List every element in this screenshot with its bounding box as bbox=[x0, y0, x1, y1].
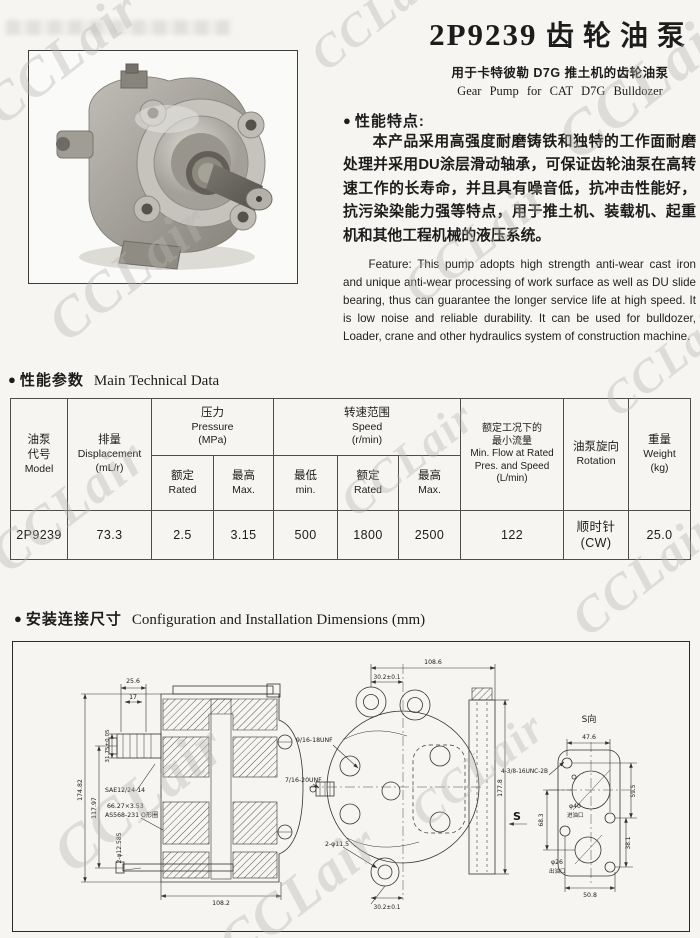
section-view bbox=[109, 684, 303, 882]
dim-label: 30.2±0.1 bbox=[374, 905, 401, 911]
features-paragraph-cn: 本产品采用高强度耐磨铸铁和独特的工作面耐磨处理并采用DU涂层滑动轴承，可保证齿轮… bbox=[343, 131, 696, 248]
cell-pressure-rated: 2.5 bbox=[152, 511, 214, 560]
cell-weight: 25.0 bbox=[629, 511, 691, 560]
s-view-labels: S向 47.6 59.5 68.3 38.1 50.8 φ40 进油口 φ26 … bbox=[539, 713, 637, 899]
dim-label: 38.1 bbox=[626, 836, 632, 849]
header-line: 最小流量 bbox=[463, 436, 561, 449]
product-name-cn: 齿轮油泵 bbox=[546, 20, 694, 51]
port-label: 7/16-20UNF bbox=[285, 777, 322, 784]
dim-label: 177.8 bbox=[497, 779, 504, 797]
page-title: 2P9239 齿轮油泵 bbox=[360, 14, 694, 54]
header-line: 最高 bbox=[216, 469, 271, 484]
features-heading-text: 性能特点: bbox=[355, 113, 425, 130]
catalog-page: CCLair CCLair CCLair CCLair CCLair CCLai… bbox=[0, 0, 700, 938]
header-line: (MPa) bbox=[154, 434, 271, 448]
header-line: Weight bbox=[631, 448, 688, 462]
cell-model: 2P9239 bbox=[11, 511, 68, 560]
header-line: Rotation bbox=[566, 455, 626, 469]
header-line: Model bbox=[13, 463, 65, 477]
dim-label: 108.6 bbox=[424, 659, 442, 666]
dim-label: 17 bbox=[129, 694, 137, 701]
header-line: Rated bbox=[154, 484, 211, 498]
spec-table: 油泵 代号 Model 排量 Displacement (mL/r) 压力 Pr… bbox=[10, 398, 691, 560]
header-line: 额定工况下的 bbox=[463, 423, 561, 436]
oring-size-label: 66.27×3.53 bbox=[107, 803, 144, 810]
spline-label: SAE12/24-14 bbox=[105, 787, 145, 794]
col-header-speed-rated: 额定 Rated bbox=[338, 456, 399, 511]
col-group-pressure: 压力 Pressure (MPa) bbox=[152, 399, 274, 456]
header-line: 转速范围 bbox=[276, 406, 458, 421]
tech-heading-cn: 性能参数 bbox=[20, 372, 84, 389]
showthrough-artifact bbox=[6, 20, 231, 35]
cell-speed-max: 2500 bbox=[399, 511, 461, 560]
header-line: Max. bbox=[216, 484, 271, 498]
dim-label: 31.75±0.05 bbox=[105, 729, 111, 763]
col-group-speed: 转速范围 Speed (r/min) bbox=[274, 399, 461, 456]
bullet-icon: ● bbox=[8, 372, 16, 387]
header-line: 压力 bbox=[154, 406, 271, 421]
dim-label: 25.6 bbox=[126, 678, 140, 685]
front-view-dimensions bbox=[313, 664, 564, 904]
header-line: 油泵 bbox=[13, 433, 65, 448]
features-heading: ●性能特点: bbox=[343, 110, 425, 131]
dim-label: 68.3 bbox=[539, 813, 545, 826]
dim-label: 117.97 bbox=[91, 797, 98, 819]
dowel-label: 2-φ12.585 bbox=[116, 832, 123, 863]
col-header-min-flow: 额定工况下的 最小流量 Min. Flow at Rated Pres. and… bbox=[461, 399, 564, 511]
front-view bbox=[309, 664, 495, 900]
header-line: (mL/r) bbox=[70, 462, 149, 476]
header-line: 最低 bbox=[276, 469, 335, 484]
model-number: 2P9239 bbox=[429, 17, 537, 52]
subtitle-en: Gear Pump for CAT D7G Bulldozer bbox=[426, 84, 694, 99]
bullet-icon: ● bbox=[343, 113, 351, 128]
front-view-labels: 108.6 30.2±0.1 9/16-18UNF 7/16-20UNF 2-φ… bbox=[285, 659, 548, 911]
cell-min-flow: 122 bbox=[461, 511, 564, 560]
dim-label: 30.2±0.1 bbox=[374, 675, 401, 681]
col-header-speed-max: 最高 Max. bbox=[399, 456, 461, 511]
outlet-label: 出油口 bbox=[549, 867, 566, 875]
rotation-cn: 顺时针 bbox=[566, 519, 626, 535]
header-line: 最高 bbox=[401, 469, 458, 484]
dim-label: 59.5 bbox=[631, 784, 637, 797]
inlet-label: 进油口 bbox=[567, 811, 584, 819]
rotation-en: (CW) bbox=[566, 535, 626, 551]
header-line: 重量 bbox=[631, 433, 688, 448]
header-line: Min. Flow at Rated bbox=[463, 448, 561, 461]
dim-label: 47.6 bbox=[582, 734, 596, 741]
install-heading-en: Configuration and Installation Dimension… bbox=[132, 612, 425, 628]
subtitle-cn: 用于卡特彼勒 D7G 推土机的齿轮油泵 bbox=[426, 62, 694, 81]
product-photo-frame bbox=[28, 50, 298, 284]
mount-bolts-label: 4-3/8-16UNC-2B bbox=[501, 769, 548, 775]
cell-speed-rated: 1800 bbox=[338, 511, 399, 560]
installation-drawing-frame: 25.6 17 31.75±0.05 174.82 117.97 SAE12/2… bbox=[12, 641, 690, 932]
header-line: 代号 bbox=[13, 448, 65, 463]
port-label: 9/16-18UNF bbox=[296, 737, 333, 744]
outlet-dia-label: φ26 bbox=[551, 859, 563, 866]
table-row: 2P9239 73.3 2.5 3.15 500 1800 2500 122 顺… bbox=[11, 511, 691, 560]
cell-displacement: 73.3 bbox=[68, 511, 152, 560]
header-line: Rated bbox=[340, 484, 396, 498]
col-header-speed-min: 最低 min. bbox=[274, 456, 338, 511]
view-direction-mark: S bbox=[513, 810, 521, 823]
header-line: 油泵旋向 bbox=[566, 440, 626, 455]
cell-pressure-max: 3.15 bbox=[214, 511, 274, 560]
header-line: Pres. and Speed bbox=[463, 461, 561, 474]
install-heading: ●安装连接尺寸Configuration and Installation Di… bbox=[14, 608, 425, 629]
cell-rotation: 顺时针 (CW) bbox=[564, 511, 629, 560]
col-header-weight: 重量 Weight (kg) bbox=[629, 399, 691, 511]
tech-data-heading: ●性能参数Main Technical Data bbox=[8, 369, 219, 390]
cell-speed-min: 500 bbox=[274, 511, 338, 560]
pump-photo-illustration bbox=[29, 51, 297, 283]
header-line: (L/min) bbox=[463, 473, 561, 486]
header-line: Max. bbox=[401, 484, 458, 498]
col-header-pressure-max: 最高 Max. bbox=[214, 456, 274, 511]
dim-label: 108.2 bbox=[212, 900, 230, 907]
col-header-displacement: 排量 Displacement (mL/r) bbox=[68, 399, 152, 511]
bullet-icon: ● bbox=[14, 611, 22, 626]
s-view-title: S向 bbox=[582, 713, 597, 725]
col-header-pressure-rated: 额定 Rated bbox=[152, 456, 214, 511]
dim-label: 174.82 bbox=[77, 779, 84, 801]
holes-label: 2-φ11.5 bbox=[325, 841, 349, 848]
subtitle-block: 用于卡特彼勒 D7G 推土机的齿轮油泵 Gear Pump for CAT D7… bbox=[426, 62, 694, 99]
header-line: Pressure bbox=[154, 421, 271, 435]
header-line: 额定 bbox=[154, 469, 211, 484]
header-line: (r/min) bbox=[276, 434, 458, 448]
dim-label: 50.8 bbox=[583, 892, 597, 899]
features-paragraph-en: Feature: This pump adopts high strength … bbox=[343, 256, 696, 346]
header-line: min. bbox=[276, 484, 335, 498]
tech-heading-en: Main Technical Data bbox=[94, 373, 219, 389]
oring-std-label: AS568-231 O形圈 bbox=[105, 811, 158, 819]
inlet-dia-label: φ40 bbox=[569, 803, 581, 810]
install-heading-cn: 安装连接尺寸 bbox=[26, 611, 122, 628]
header-line: Speed bbox=[276, 421, 458, 435]
installation-drawing: 25.6 17 31.75±0.05 174.82 117.97 SAE12/2… bbox=[13, 642, 689, 929]
col-header-model: 油泵 代号 Model bbox=[11, 399, 68, 511]
header-line: (kg) bbox=[631, 462, 688, 476]
header-line: 额定 bbox=[340, 469, 396, 484]
col-header-rotation: 油泵旋向 Rotation bbox=[564, 399, 629, 511]
header-line: Displacement bbox=[70, 448, 149, 462]
header-line: 排量 bbox=[70, 433, 149, 448]
